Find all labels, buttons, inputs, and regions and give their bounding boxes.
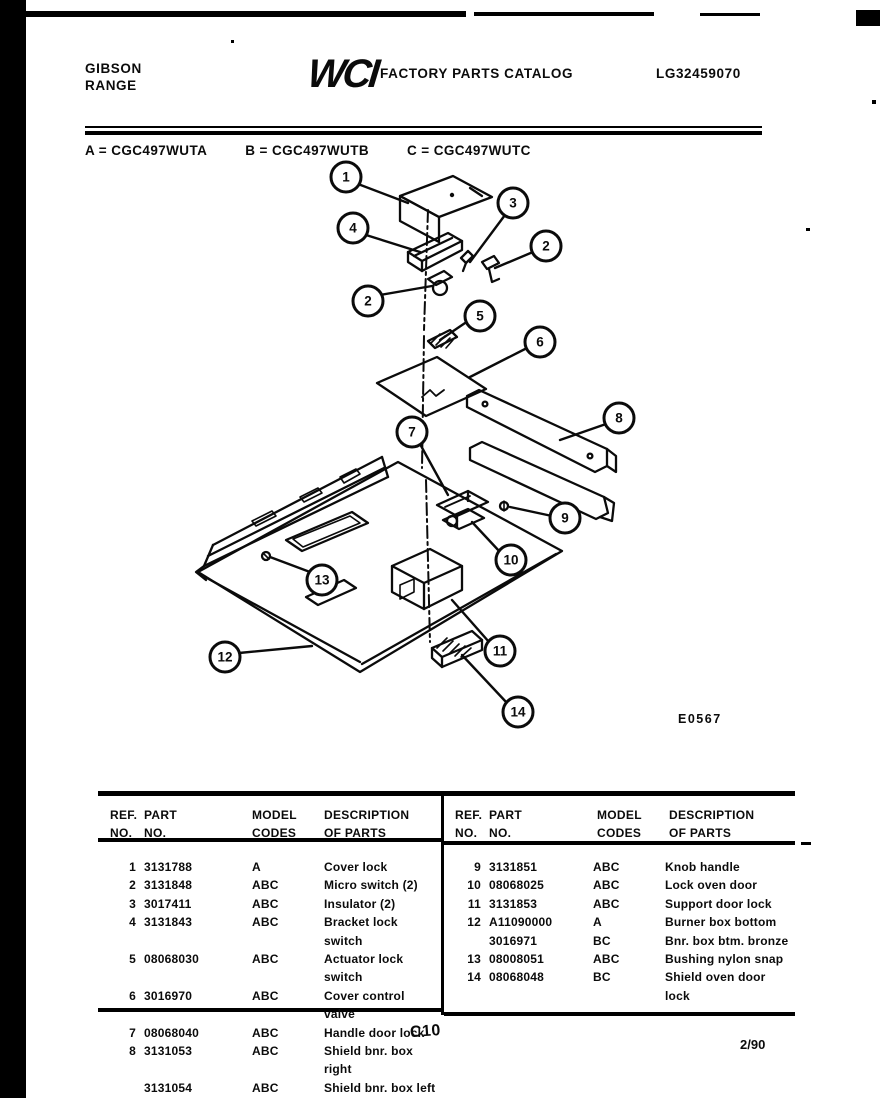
table-row: 5 08068030 ABC Actuator lock switch	[110, 950, 438, 987]
cell-description: Actuator lock switch	[324, 950, 438, 987]
cell-model-codes: BC	[593, 932, 657, 950]
cell-description: Lock oven door	[665, 876, 791, 894]
col-part2: NO.	[489, 824, 589, 842]
cell-description: Support door lock	[665, 895, 791, 913]
col-desc2: OF PARTS	[324, 824, 409, 842]
table-row: 10 08068025 ABC Lock oven door	[451, 876, 791, 894]
callout-number: 3	[509, 196, 517, 211]
table-row: 3131054 ABC Shield bnr. box left	[110, 1079, 438, 1097]
col-part: PART	[489, 806, 589, 824]
table-row: 6 3016970 ABC Cover control valve	[110, 987, 438, 1024]
cell-model-codes: ABC	[593, 876, 657, 894]
callout-bubble: 2	[352, 285, 385, 318]
table-row: 13 08008051 ABC Bushing nylon snap	[451, 950, 791, 968]
callout-number: 8	[615, 411, 623, 426]
cell-model-codes: ABC	[252, 950, 316, 987]
cell-ref-no: 6	[110, 987, 136, 1024]
cell-part-no: 3131053	[144, 1042, 244, 1079]
cell-ref-no: 9	[451, 858, 481, 876]
callout-bubble: 2	[530, 230, 563, 263]
table-rows-right: 9 3131851 ABC Knob handle 10 08068025 AB…	[451, 858, 791, 1005]
cell-model-codes: BC	[593, 968, 657, 1005]
cell-description: Knob handle	[665, 858, 791, 876]
cell-description: Cover lock	[324, 858, 438, 876]
callout-bubble: 14	[502, 696, 535, 729]
cell-model-codes: ABC	[593, 950, 657, 968]
cell-description: Shield bnr. box left	[324, 1079, 438, 1097]
cell-description: Handle door lock	[324, 1024, 438, 1042]
col-ref2: NO.	[110, 824, 136, 842]
cell-ref-no: 4	[110, 913, 136, 950]
table-row: 12 A11090000 A Burner box bottom	[451, 913, 791, 931]
cell-model-codes: ABC	[252, 895, 316, 913]
cell-part-no: 08068048	[489, 968, 585, 1005]
cell-part-no: 3131054	[144, 1079, 244, 1097]
callout-bubble: 1	[330, 161, 363, 194]
col-ref2: NO.	[455, 824, 481, 842]
callout-bubble: 9	[549, 502, 582, 535]
table-row: 3 3017411 ABC Insulator (2)	[110, 895, 438, 913]
cell-ref-no: 14	[451, 968, 481, 1005]
cell-part-no: 3131853	[489, 895, 585, 913]
cell-part-no: 08068030	[144, 950, 244, 987]
cell-ref-no: 1	[110, 858, 136, 876]
callout-number: 2	[364, 294, 372, 309]
col-model2: CODES	[252, 824, 316, 842]
cell-model-codes: ABC	[252, 876, 316, 894]
cell-ref-no: 2	[110, 876, 136, 894]
cell-description: Burner box bottom	[665, 913, 791, 931]
cell-ref-no: 12	[451, 913, 481, 931]
cell-description: Insulator (2)	[324, 895, 438, 913]
cell-description: Bnr. box btm. bronze	[665, 932, 791, 950]
callout-number: 14	[510, 705, 525, 720]
cell-description: Bushing nylon snap	[665, 950, 791, 968]
cell-model-codes: ABC	[252, 1042, 316, 1079]
callout-number: 13	[314, 573, 329, 588]
callout-bubble: 12	[209, 641, 242, 674]
col-model: MODEL	[597, 806, 661, 824]
cell-ref-no: 10	[451, 876, 481, 894]
callout-number: 1	[342, 170, 350, 185]
cell-part-no: 08068025	[489, 876, 585, 894]
table-row: 8 3131053 ABC Shield bnr. box right	[110, 1042, 438, 1079]
table-center-divider	[441, 791, 444, 1015]
cell-model-codes: ABC	[252, 1024, 316, 1042]
table-right-bottom-border	[444, 1012, 795, 1016]
cell-model-codes: A	[593, 913, 657, 931]
cell-description: Bracket lock switch	[324, 913, 438, 950]
table-row: 7 08068040 ABC Handle door lock	[110, 1024, 438, 1042]
callout-number: 10	[503, 553, 518, 568]
cell-part-no: 3131843	[144, 913, 244, 950]
cell-model-codes: ABC	[593, 858, 657, 876]
cell-ref-no: 3	[110, 895, 136, 913]
cell-ref-no: 8	[110, 1042, 136, 1079]
callout-number: 6	[536, 335, 544, 350]
cell-part-no: 3131848	[144, 876, 244, 894]
col-ref: REF.	[110, 806, 136, 824]
table-header-left: REF. PART MODEL DESCRIPTION NO. NO. CODE…	[110, 806, 409, 843]
catalog-page: GIBSON RANGE WCI FACTORY PARTS CATALOG L…	[0, 0, 880, 1098]
cell-model-codes: ABC	[593, 895, 657, 913]
table-row: 3016971 BC Bnr. box btm. bronze	[451, 932, 791, 950]
cell-part-no: A11090000	[489, 913, 585, 931]
cell-part-no: 08068040	[144, 1024, 244, 1042]
cell-part-no: 3016970	[144, 987, 244, 1024]
cell-description: Shield oven door lock	[665, 968, 791, 1005]
callout-bubble: 4	[337, 212, 370, 245]
col-desc: DESCRIPTION	[324, 806, 409, 824]
cell-description: Shield bnr. box right	[324, 1042, 438, 1079]
cell-description: Micro switch (2)	[324, 876, 438, 894]
callout-bubble: 7	[396, 416, 429, 449]
table-row: 2 3131848 ABC Micro switch (2)	[110, 876, 438, 894]
callout-number: 9	[561, 511, 569, 526]
callout-number: 7	[408, 425, 416, 440]
cell-ref-no	[451, 932, 481, 950]
cell-part-no: 3131851	[489, 858, 585, 876]
cell-model-codes: ABC	[252, 913, 316, 950]
cell-model-codes: ABC	[252, 1079, 316, 1097]
table-row: 9 3131851 ABC Knob handle	[451, 858, 791, 876]
table-row: 11 3131853 ABC Support door lock	[451, 895, 791, 913]
cell-ref-no: 5	[110, 950, 136, 987]
table-row: 14 08068048 BC Shield oven door lock	[451, 968, 791, 1005]
table-header-right: REF. PART MODEL DESCRIPTION NO. NO. CODE…	[455, 806, 754, 843]
callout-number: 4	[349, 221, 357, 236]
col-part2: NO.	[144, 824, 244, 842]
parts-table: REF. PART MODEL DESCRIPTION NO. NO. CODE…	[0, 0, 880, 1098]
col-model: MODEL	[252, 806, 316, 824]
col-ref: REF.	[455, 806, 481, 824]
callout-bubble: 5	[464, 300, 497, 333]
callout-bubble: 6	[524, 326, 557, 359]
callout-number: 2	[542, 239, 550, 254]
cell-part-no: 3017411	[144, 895, 244, 913]
col-desc: DESCRIPTION	[669, 806, 754, 824]
cell-ref-no: 11	[451, 895, 481, 913]
cell-description: Cover control valve	[324, 987, 438, 1024]
cell-part-no: 3016971	[489, 932, 585, 950]
cell-ref-no: 13	[451, 950, 481, 968]
col-desc2: OF PARTS	[669, 824, 754, 842]
cell-model-codes: A	[252, 858, 316, 876]
cell-part-no: 08008051	[489, 950, 585, 968]
cell-model-codes: ABC	[252, 987, 316, 1024]
callout-bubble: 10	[495, 544, 528, 577]
callout-bubble: 3	[497, 187, 530, 220]
callout-number: 5	[476, 309, 484, 324]
table-rows-left: 1 3131788 A Cover lock 2 3131848 ABC Mic…	[110, 858, 438, 1097]
table-row: 1 3131788 A Cover lock	[110, 858, 438, 876]
cell-part-no: 3131788	[144, 858, 244, 876]
col-model2: CODES	[597, 824, 661, 842]
table-right-header-rule-dash	[801, 842, 811, 845]
callout-bubble: 13	[306, 564, 339, 597]
cell-ref-no	[110, 1079, 136, 1097]
col-part: PART	[144, 806, 244, 824]
callout-number: 11	[493, 644, 507, 659]
callout-number: 12	[217, 650, 232, 665]
cell-ref-no: 7	[110, 1024, 136, 1042]
table-top-border	[98, 791, 795, 796]
table-row: 4 3131843 ABC Bracket lock switch	[110, 913, 438, 950]
callout-bubble: 8	[603, 402, 636, 435]
figure-code: E0567	[678, 712, 722, 726]
callout-bubble: 11	[484, 635, 517, 668]
